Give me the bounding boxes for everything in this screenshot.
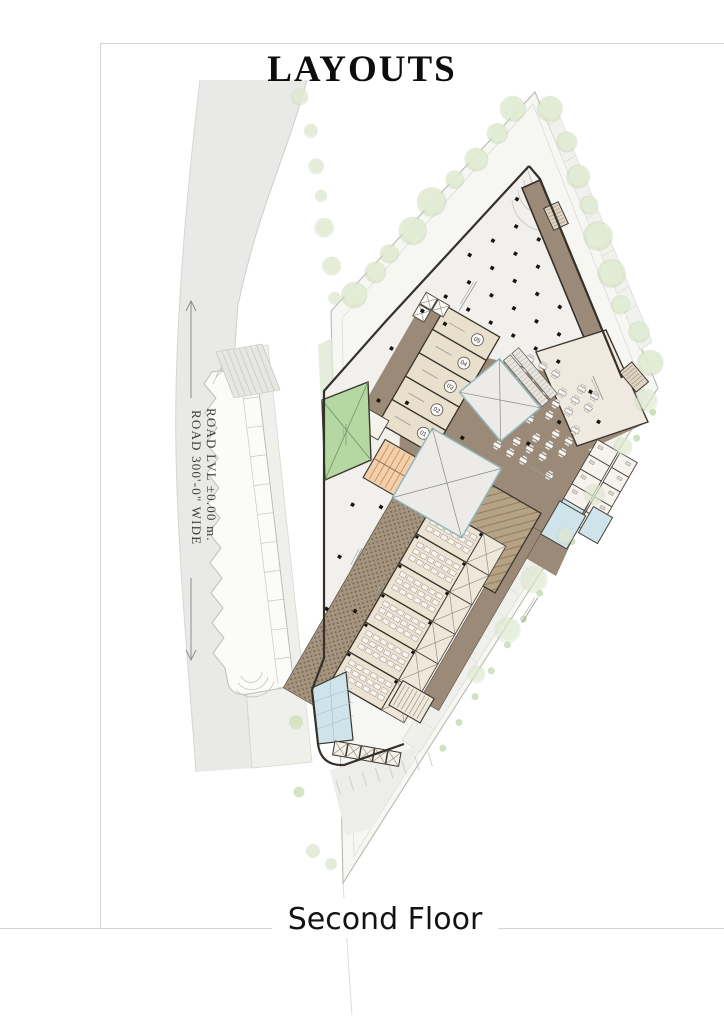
plan-line <box>523 598 535 617</box>
green-patch <box>306 844 320 858</box>
tree <box>317 219 333 235</box>
tree <box>586 485 604 503</box>
tree <box>420 189 444 213</box>
tree <box>569 166 589 186</box>
floor-label: Second Floor <box>288 902 483 937</box>
tree <box>489 124 507 142</box>
tree <box>293 89 307 103</box>
tree <box>523 568 545 590</box>
tree <box>382 245 398 261</box>
road-width-label: ROAD 300'-0" WIDE <box>189 410 204 545</box>
road-labels: ROAD LVL ±0.00 m. ROAD 300'-0" WIDE <box>189 408 219 545</box>
parking-line <box>428 752 432 766</box>
tree <box>402 218 425 241</box>
tree <box>316 190 326 200</box>
tree <box>330 292 341 303</box>
tree <box>503 97 525 119</box>
floor-plan-canvas: 05 04 03 02 01 <box>0 0 724 1024</box>
green-patch <box>289 715 303 729</box>
tree <box>448 171 464 187</box>
plan-line <box>522 597 538 622</box>
tree <box>600 261 623 284</box>
tree <box>586 223 610 247</box>
hedge-bush <box>472 693 479 700</box>
tree <box>367 263 385 281</box>
tree <box>636 390 656 410</box>
tree <box>306 124 318 136</box>
hedge-bush <box>455 719 462 726</box>
hedge-bush <box>439 745 446 752</box>
road-level-label: ROAD LVL ±0.00 m. <box>204 408 219 542</box>
tree <box>559 132 577 150</box>
tree <box>467 149 487 169</box>
tree <box>540 97 562 119</box>
hedge-bush <box>488 667 495 674</box>
tree <box>640 351 662 373</box>
tree <box>631 322 649 340</box>
page-title: LAYOUTS <box>267 49 456 90</box>
tree <box>582 197 598 213</box>
tree <box>558 528 572 542</box>
tree <box>497 618 518 639</box>
drawing-sheet: 05 04 03 02 01 <box>0 0 724 1024</box>
green-patch <box>325 858 337 870</box>
tree <box>310 159 323 172</box>
tree <box>470 666 485 681</box>
tree <box>324 257 340 273</box>
tree <box>613 296 629 312</box>
green-patch <box>294 787 305 798</box>
tree <box>615 438 631 454</box>
tree <box>344 283 366 305</box>
hedge-bush <box>633 435 640 442</box>
